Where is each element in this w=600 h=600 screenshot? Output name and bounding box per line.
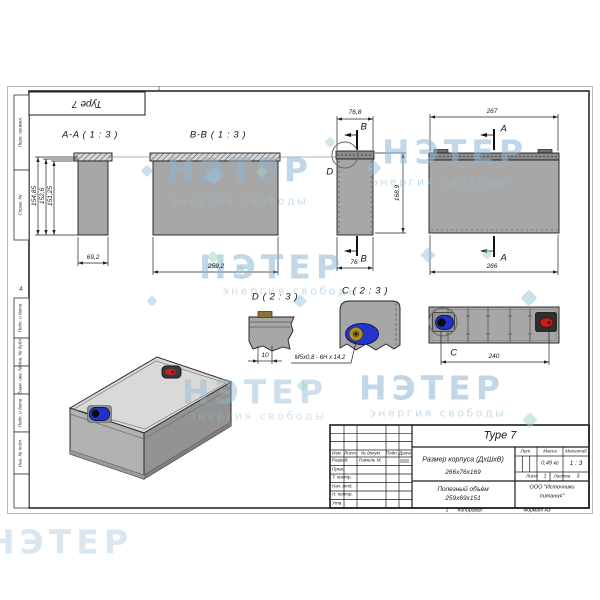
margin-label-inv-dubl: Инв. № дубл.	[19, 338, 24, 366]
cut-letter-b-bottom: B	[361, 254, 368, 264]
repeat-designation-stamp: Type 7	[72, 98, 102, 108]
tb-useful-volume-dims: 259x69x151	[445, 496, 480, 503]
tb-sheet-value: 1	[544, 474, 547, 479]
tb-scale-value: 1 : 3	[570, 461, 583, 468]
dim-76: 76	[350, 260, 357, 267]
dim-76-8: 76,8	[349, 110, 362, 117]
zone-letter-left: А	[19, 288, 22, 293]
tb-mass-value: 0,49 кг	[541, 461, 559, 467]
tb-lit-header: Лит.	[521, 449, 532, 454]
tb-col-podp: Подп.	[386, 451, 398, 456]
watermark-brand: НЭТЕР	[167, 151, 313, 190]
section-aa-view	[35, 153, 112, 266]
cut-letter-a-bottom: A	[501, 253, 508, 263]
tb-company-line2: питания"	[540, 494, 565, 500]
tb-col-list: Лист	[344, 451, 356, 456]
dim-10: 10	[261, 353, 268, 360]
dim-168-9: 168,9	[395, 185, 402, 201]
dim-152-6: 152,6	[40, 188, 47, 204]
dim-69-2: 69,2	[87, 255, 100, 262]
section-bb-label: B-B ( 1 : 3 )	[190, 130, 246, 140]
margin-label-sprav-no: Справ. №	[19, 195, 24, 216]
tb-row-nachotd: Нач. отд.	[332, 485, 353, 490]
watermark-tagline: энергия свободы	[370, 407, 507, 420]
tb-col-dokum: № докум.	[361, 451, 381, 456]
tb-scale-header: Масштаб	[565, 449, 586, 454]
tb-col-data: Дата	[399, 451, 411, 456]
tb-row-nkontr: Н. контр.	[332, 493, 353, 498]
watermark-tagline: энергия свободы	[372, 176, 509, 189]
detail-c-view	[291, 301, 400, 363]
margin-label-inv-podl: Инв. № подл.	[19, 439, 24, 468]
margin-label-vzam-inv: Взам. инв. №	[19, 366, 24, 394]
watermark-brand: НЭТЕР	[182, 373, 328, 412]
detail-letter-d: D	[326, 167, 333, 177]
margin-label-podp-data: Подп. и дата	[19, 304, 24, 333]
tb-sheet-label: Лист	[526, 474, 538, 479]
watermark-brand: НЭТЕР	[382, 133, 528, 172]
drawing-sheet: НЭТЕР энергия свободы НЭТЕР энергия своб…	[0, 0, 600, 600]
dim-154-85: 154,85	[32, 186, 39, 206]
watermark-brand: НЭТЕР	[0, 523, 133, 562]
margin-number-bottom: 1	[446, 508, 449, 513]
tb-row-utv: Утв.	[332, 502, 342, 507]
zone-number-top: 1	[158, 87, 161, 92]
margin-label-perv-primen: Перв. примен.	[19, 117, 24, 148]
date-smudge	[400, 459, 409, 463]
section-aa-label: A-A ( 1 : 3 )	[62, 130, 118, 140]
tb-sheets-label: Листов	[554, 474, 571, 479]
watermark-brand: НЭТЕР	[359, 369, 505, 408]
tb-row-prov: Пров.	[332, 468, 344, 473]
detail-letter-c: C	[450, 348, 457, 358]
tb-part-title: Размер корпуса (ДхШхВ)	[422, 457, 504, 464]
margin-label-podp-data2: Подп. и дата	[19, 399, 24, 428]
tb-author-name: Рамиль М.	[359, 459, 382, 464]
detail-c-label: C ( 2 : 3 )	[342, 286, 388, 296]
watermark-tagline: энергия свободы	[190, 410, 327, 423]
detail-d-label: D ( 2 : 3 )	[252, 292, 298, 302]
tb-sheets-value: 3	[577, 474, 580, 479]
cut-letter-a-top: A	[501, 124, 508, 134]
dim-151-25: 151,25	[48, 186, 55, 206]
doc-designation: Type 7	[484, 431, 517, 442]
tb-company-line1: ООО "Источники	[530, 485, 575, 491]
tb-useful-volume: Полезный объём	[437, 487, 488, 494]
copied-by-label: Копировал	[458, 508, 483, 513]
dim-267: 267	[487, 109, 498, 116]
dim-266: 266	[487, 264, 498, 271]
tb-part-dims: 266x76x169	[445, 470, 480, 477]
tb-mass-header: Масса	[543, 449, 557, 454]
dim-259-2: 259,2	[208, 264, 224, 271]
tb-row-razrab: Разраб.	[332, 459, 349, 464]
format-label: Формат А3	[523, 508, 550, 513]
dim-240: 240	[489, 354, 500, 361]
detail-d-view	[248, 312, 294, 365]
thread-callout: M5x0,8 - 6H x 14,2	[295, 355, 346, 361]
watermark-tagline: энергия свободы	[172, 195, 309, 208]
tb-row-tkontr: Т. контр.	[332, 476, 352, 481]
tb-col-izm: Изм.	[332, 451, 342, 456]
cut-letter-b-top: B	[361, 122, 368, 132]
